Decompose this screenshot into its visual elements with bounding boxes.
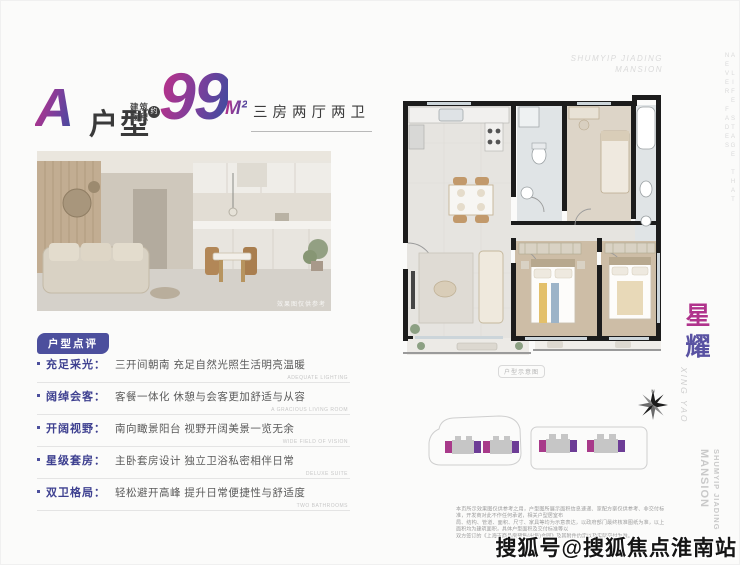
review-desc: 南向瞰景阳台 视野开阔美景一览无余 <box>115 421 294 436</box>
interior-photo-art <box>37 151 331 311</box>
review-item: 充足采光： 三开间朝南 充足自然光照生活明亮温暖 ADEQUATE LIGHTI… <box>37 356 350 383</box>
review-label: 星级套房 <box>46 452 94 468</box>
layout-tag: 三房两厅两卫 <box>251 101 372 132</box>
review-item: 开阔视野： 南向瞰景阳台 视野开阔美景一览无余 WIDE FIELD OF VI… <box>37 420 350 447</box>
plan-caption: 户型示意图 <box>498 365 545 378</box>
review-desc: 轻松避开高峰 提升日常便捷性与舒适度 <box>115 485 305 500</box>
bullet-dot-icon <box>37 458 40 461</box>
building-icon <box>587 434 625 453</box>
disclaimer-line1: 本页所示效果图仅供参考之用，户型图所展示面积信息速递、家配方案仅供参考、非交付标… <box>456 506 664 520</box>
interior-photo: 效果图仅供参考 <box>37 151 331 311</box>
review-en: WIDE FIELD OF VISION <box>37 436 350 446</box>
project-name-en: XING YAO <box>679 367 689 423</box>
brand-bottom-vertical: MANSION SHUMYIP JIADING <box>698 449 721 541</box>
photo-caption: 效果图仅供参考 <box>277 299 326 308</box>
review-item: 阔绰会客： 客餐一体化 休憩与会客更加舒适与从容 A GRACIOUS LIVI… <box>37 388 350 415</box>
building-icon <box>483 436 519 454</box>
review-desc: 三开间朝南 充足自然光照生活明亮温暖 <box>115 357 305 372</box>
brand-top-right: SHUMYIP JIADING MANSION <box>561 53 663 75</box>
building-icon <box>539 434 577 453</box>
project-name-char2: 耀 <box>682 332 714 363</box>
bullet-dot-icon <box>37 490 40 493</box>
brand-top-line2: MANSION <box>561 64 663 75</box>
brand-bottom-shumyip: SHUMYIP JIADING <box>712 449 721 541</box>
sohu-watermark: 搜狐号@搜狐焦点淮南站 <box>496 532 737 562</box>
review-label: 双卫格局 <box>46 484 94 500</box>
site-plan-key <box>425 415 655 477</box>
review-en: A GRACIOUS LIVING ROOM <box>37 404 350 414</box>
area-value: 99 <box>159 63 228 129</box>
edge-slogan-vertical: A LIFE STAGE THAT NEVER FADES <box>724 53 736 228</box>
bullet-dot-icon <box>37 362 40 365</box>
review-colon: ： <box>94 388 105 404</box>
review-colon: ： <box>94 420 105 436</box>
project-name-char1: 星 <box>682 301 714 332</box>
review-label: 开阔视野 <box>46 420 94 436</box>
plan-letter: A <box>35 81 74 135</box>
bullet-dot-icon <box>37 426 40 429</box>
review-item: 星级套房： 主卧套房设计 独立卫浴私密相伴日常 DELUXE SUITE <box>37 452 350 479</box>
floor-plan-drawing <box>399 93 667 365</box>
review-list: 充足采光： 三开间朝南 充足自然光照生活明亮温暖 ADEQUATE LIGHTI… <box>37 356 350 516</box>
bullet-dot-icon <box>37 394 40 397</box>
brand-bottom-mansion: MANSION <box>698 449 710 541</box>
review-desc: 主卧套房设计 独立卫浴私密相伴日常 <box>115 453 294 468</box>
review-en: DELUXE SUITE <box>37 468 350 478</box>
area-prefix-line1: 建筑 <box>130 102 149 112</box>
building-icon <box>445 436 481 454</box>
project-name-vertical: 星 耀 <box>682 301 714 363</box>
review-en: ADEQUATE LIGHTING <box>37 372 350 382</box>
review-item: 双卫格局： 轻松避开高峰 提升日常便捷性与舒适度 TWO BATHROOMS <box>37 484 350 511</box>
review-label: 阔绰会客 <box>46 388 94 404</box>
compass-north-label: N <box>651 389 654 394</box>
review-colon: ： <box>94 484 105 500</box>
review-en: TWO BATHROOMS <box>37 500 350 510</box>
floor-plan <box>399 93 667 365</box>
review-badge: 户型点评 <box>37 333 109 354</box>
review-colon: ： <box>94 452 105 468</box>
brand-top-line1: SHUMYIP JIADING <box>561 53 663 64</box>
brochure-page: A 户型 建筑 面积 约 99 M² 三房两厅两卫 <box>0 0 740 565</box>
area-prefix: 建筑 面积 <box>130 102 149 122</box>
review-desc: 客餐一体化 休憩与会客更加舒适与从容 <box>115 389 305 404</box>
review-label: 充足采光 <box>46 356 94 372</box>
area-unit: M² <box>225 98 247 120</box>
review-colon: ： <box>94 356 105 372</box>
area-prefix-line2: 面积 <box>130 112 149 122</box>
